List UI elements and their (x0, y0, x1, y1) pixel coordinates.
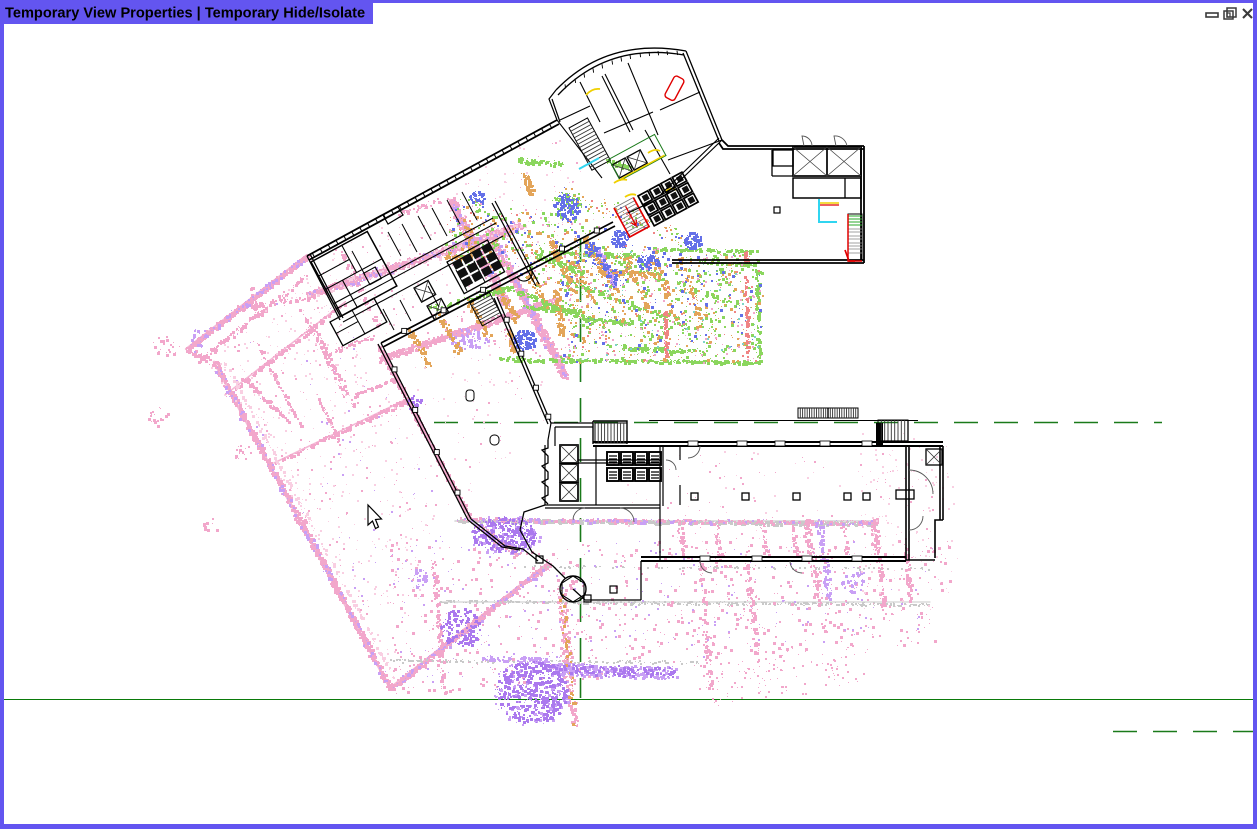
svg-text:Temporary View Properties | Te: Temporary View Properties | Temporary Hi… (5, 6, 365, 22)
